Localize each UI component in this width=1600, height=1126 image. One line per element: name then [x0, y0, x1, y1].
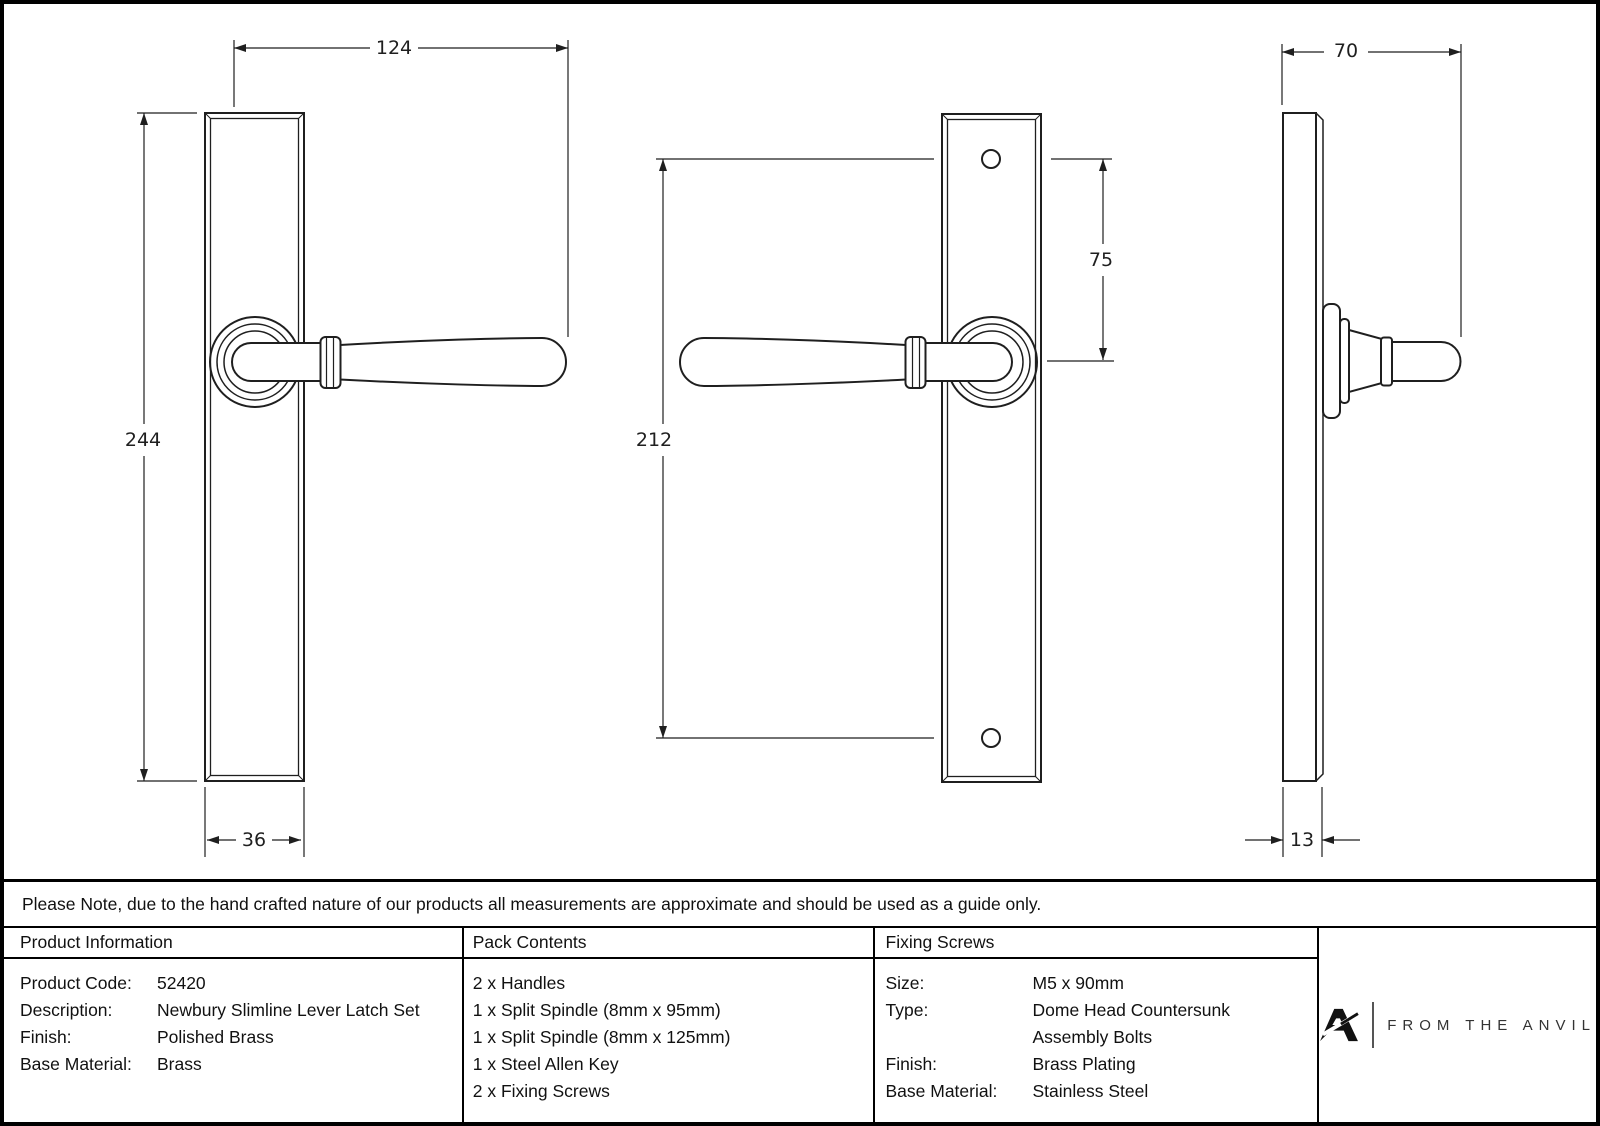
spec-row: Base Material: Brass [4, 1051, 462, 1078]
dimension-arrowheads [140, 44, 1461, 844]
pack-content-item: 2 x Handles [464, 970, 873, 997]
pack-content-item: 1 x Split Spindle (8mm x 125mm) [464, 1024, 873, 1051]
screw-hole-top [982, 150, 1000, 168]
spec-label: Type: [886, 997, 1033, 1024]
product-information-header: Product Information [4, 928, 462, 959]
dimension-lines [137, 40, 1461, 857]
spec-row: Description: Newbury Slimline Lever Latc… [4, 997, 462, 1024]
side-profile-view [1283, 113, 1461, 781]
spec-row: Assembly Bolts [875, 1024, 1318, 1051]
front-view-lever-right [205, 113, 566, 781]
spec-row: Size: M5 x 90mm [875, 970, 1318, 997]
spec-label [886, 1024, 1033, 1051]
spec-value: 52420 [157, 970, 462, 997]
pack-content-item: 1 x Steel Allen Key [464, 1051, 873, 1078]
measurement-note: Please Note, due to the hand crafted nat… [4, 879, 1596, 928]
spec-value: Newbury Slimline Lever Latch Set [157, 997, 462, 1024]
spec-row: Product Code: 52420 [4, 970, 462, 997]
spec-value: Assembly Bolts [1033, 1024, 1318, 1051]
spec-label: Product Code: [20, 970, 157, 997]
product-information-column: Product Information Product Code: 52420 … [4, 928, 464, 1122]
spec-label: Finish: [20, 1024, 157, 1051]
dim-label-screw-offset: 75 [1086, 249, 1116, 271]
technical-drawing: 124 244 36 212 75 70 13 [4, 4, 1596, 879]
spec-value: Stainless Steel [1033, 1078, 1318, 1105]
anvil-logo-icon [1319, 1007, 1359, 1043]
spec-value: Brass Plating [1033, 1051, 1318, 1078]
spec-value: Polished Brass [157, 1024, 462, 1051]
spec-value: M5 x 90mm [1033, 970, 1318, 997]
pack-content-item: 1 x Split Spindle (8mm x 95mm) [464, 997, 873, 1024]
product-information-rows: Product Code: 52420 Description: Newbury… [4, 959, 462, 1122]
brand-name: FROM THE ANVIL [1387, 1017, 1596, 1034]
spec-value: Brass [157, 1051, 462, 1078]
pack-content-item: 2 x Fixing Screws [464, 1078, 873, 1105]
pack-contents-column: Pack Contents 2 x Handles 1 x Split Spin… [464, 928, 875, 1122]
dim-label-projection: 70 [1331, 40, 1361, 62]
spec-row: Finish: Brass Plating [875, 1051, 1318, 1078]
drawing-sheet: 124 244 36 212 75 70 13 Please Note, due… [0, 0, 1600, 1126]
dim-label-plate-width: 36 [239, 829, 269, 851]
spec-label: Size: [886, 970, 1033, 997]
spec-label: Description: [20, 997, 157, 1024]
dim-label-thickness: 13 [1287, 829, 1317, 851]
fixing-screws-column: Fixing Screws Size: M5 x 90mm Type: Dome… [875, 928, 1320, 1122]
spec-value: Dome Head Countersunk [1033, 997, 1318, 1024]
spec-row: Type: Dome Head Countersunk [875, 997, 1318, 1024]
dim-label-screw-centres: 212 [633, 429, 675, 451]
front-view-lever-left [680, 114, 1041, 782]
spec-label: Base Material: [20, 1051, 157, 1078]
screw-hole-bottom [982, 729, 1000, 747]
spec-row: Finish: Polished Brass [4, 1024, 462, 1051]
spec-table: Product Information Product Code: 52420 … [4, 928, 1596, 1122]
fixing-screws-header: Fixing Screws [875, 928, 1318, 959]
line-art [4, 4, 1596, 879]
spec-label: Finish: [886, 1051, 1033, 1078]
dim-label-lever-length: 124 [373, 37, 415, 59]
dim-label-plate-height: 244 [122, 429, 164, 451]
pack-contents-header: Pack Contents [464, 928, 873, 959]
brand-logo: FROM THE ANVIL [1319, 928, 1596, 1122]
logo-divider [1372, 1002, 1374, 1048]
spec-row: Base Material: Stainless Steel [875, 1078, 1318, 1105]
spec-label: Base Material: [886, 1078, 1033, 1105]
brand-column: FROM THE ANVIL [1319, 928, 1596, 1122]
fixing-screws-rows: Size: M5 x 90mm Type: Dome Head Counters… [875, 959, 1318, 1122]
pack-contents-list: 2 x Handles 1 x Split Spindle (8mm x 95m… [464, 959, 873, 1122]
